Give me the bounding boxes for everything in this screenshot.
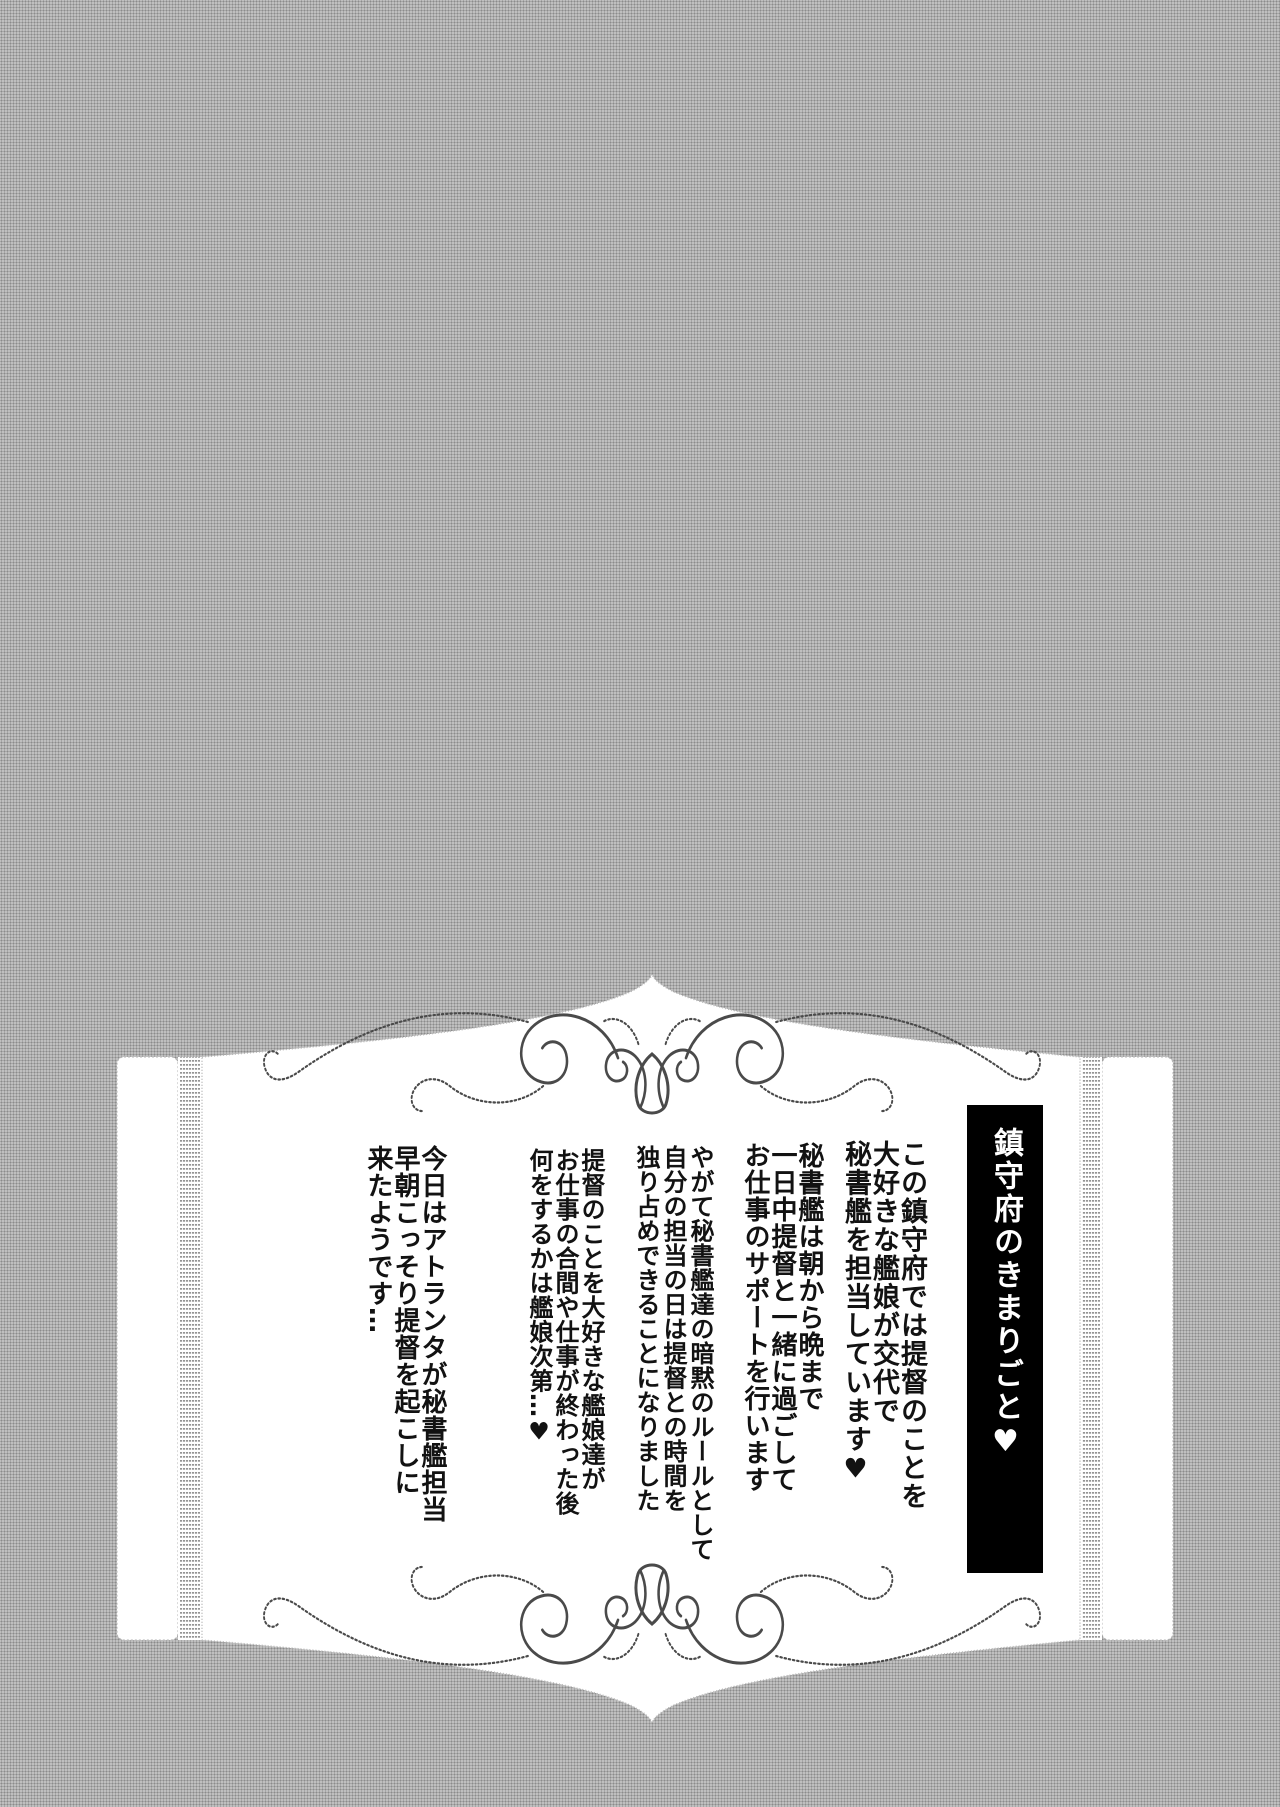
paragraph-unspoken-rule: やがて秘書艦達の暗黙のルールとして 自分の担当の日は提督との時間を 独り占めでき…: [632, 1145, 713, 1685]
left-ribbon: [180, 1057, 200, 1640]
paragraph-today-atlanta: 今日はアトランタが秘書艦担当 早朝こっそり提督を起こしに 来たようです…: [364, 1145, 445, 1685]
right-side-column: [1102, 1057, 1173, 1640]
paragraph-secretary-duty: 秘書艦は朝から晩まで 一日中提督と一緒に過ごして お仕事のサポートを行います: [741, 1142, 822, 1682]
left-side-column: [117, 1057, 178, 1640]
title-banner: 鎮守府のきまりごと♥: [967, 1105, 1043, 1573]
paragraph-intro: この鎮守府では提督のことを 大好きな艦娘が交代で 秘書艦を担当しています♥: [841, 1140, 925, 1680]
title-text: 鎮守府のきまりごと♥: [967, 1127, 1043, 1462]
paragraph-free-time: 提督のことを大好きな艦娘達が お仕事の合間や仕事が終わった後 何をするかは艦娘次…: [526, 1148, 604, 1688]
manga-page: 鎮守府のきまりごと♥ この鎮守府では提督のことを 大好きな艦娘が交代で 秘書艦を…: [0, 0, 1280, 1807]
right-ribbon: [1082, 1057, 1100, 1640]
